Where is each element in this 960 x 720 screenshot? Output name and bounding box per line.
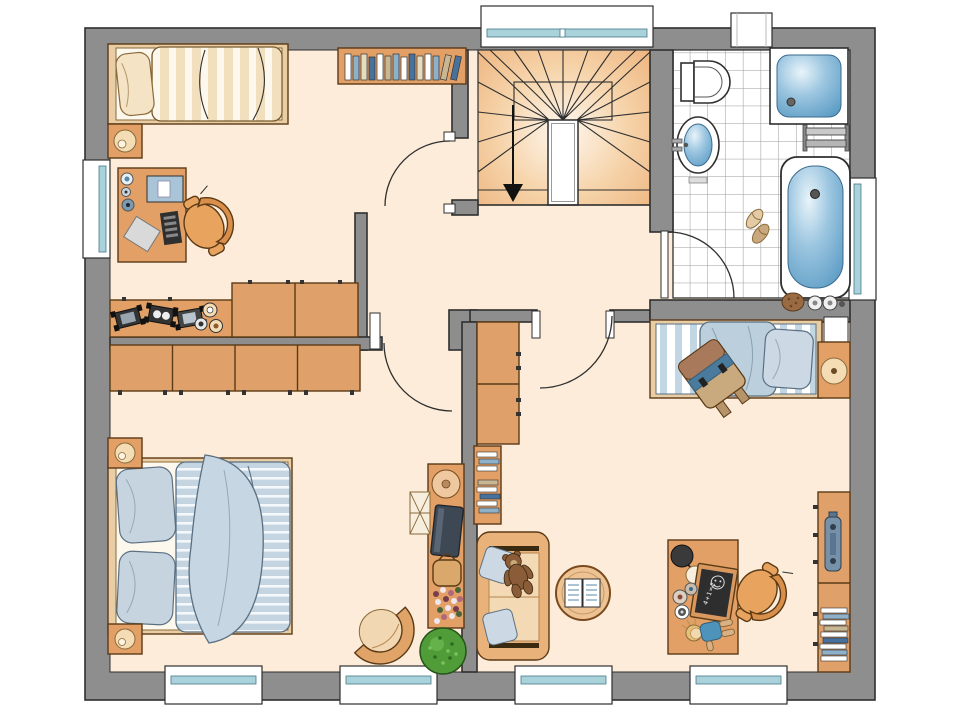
- pillow: [115, 51, 155, 116]
- wall-niche: [824, 317, 848, 342]
- nightstand-bottom: [108, 624, 142, 654]
- tv: [430, 505, 463, 558]
- tv-sideboard: [428, 464, 464, 628]
- window-bottom-2: [340, 666, 437, 704]
- chalkboard: 4+1=2: [690, 563, 738, 623]
- wall-stairs-bath: [650, 50, 673, 232]
- sofa: [477, 532, 549, 660]
- cabinets: [232, 280, 358, 337]
- floor-plan: 4+1=2: [0, 0, 960, 720]
- window-right-bath: [849, 178, 876, 300]
- nightstand: [818, 342, 850, 398]
- speaker: [825, 512, 841, 571]
- wall-bookshelf: [338, 48, 466, 84]
- shelf-unit: [813, 492, 850, 672]
- plant: [420, 628, 466, 674]
- magazines: [565, 579, 600, 607]
- shower: [770, 48, 848, 124]
- double-bed: [108, 455, 292, 643]
- nightstand-top: [108, 438, 142, 468]
- tall-cabinet: [477, 322, 521, 444]
- toilet: [681, 61, 730, 103]
- single-bed: [108, 44, 288, 124]
- wall-hall-kids-right: [610, 310, 650, 322]
- window-bottom-1: [165, 666, 262, 704]
- lamp: [115, 629, 135, 649]
- winder-staircase: [478, 50, 650, 205]
- window-bottom-3: [515, 666, 612, 704]
- round-side-table: [556, 566, 610, 620]
- floor-plan-canvas: 4+1=2: [0, 0, 960, 720]
- door-leaf: [661, 231, 668, 298]
- stair-landing: [548, 120, 578, 205]
- wardrobe-4-door: [110, 345, 360, 395]
- wall-bookshelf-sofa: [474, 446, 501, 524]
- tap-icon: [672, 139, 682, 143]
- duvet: [152, 47, 282, 121]
- window-left: [83, 160, 110, 258]
- side-unit: [410, 492, 430, 534]
- tap-icon: [811, 190, 820, 199]
- pillow: [762, 328, 814, 389]
- lamp: [115, 443, 135, 463]
- wall-nook-block: [452, 200, 478, 215]
- desk: [118, 168, 186, 262]
- bath-sponge: [782, 293, 804, 311]
- window-bottom-4: [690, 666, 787, 704]
- pillow-bottom: [116, 551, 176, 626]
- wall-hall-kids-left: [470, 310, 537, 322]
- books-stack: [820, 608, 849, 661]
- nightstand: [108, 124, 142, 158]
- window-bath-top: [731, 13, 772, 47]
- bathtub: [781, 157, 850, 298]
- window-stairs-top: [481, 6, 653, 47]
- kids-desk: 4+1=2: [668, 540, 738, 656]
- pillow-top: [115, 466, 176, 544]
- drain-icon: [787, 98, 795, 106]
